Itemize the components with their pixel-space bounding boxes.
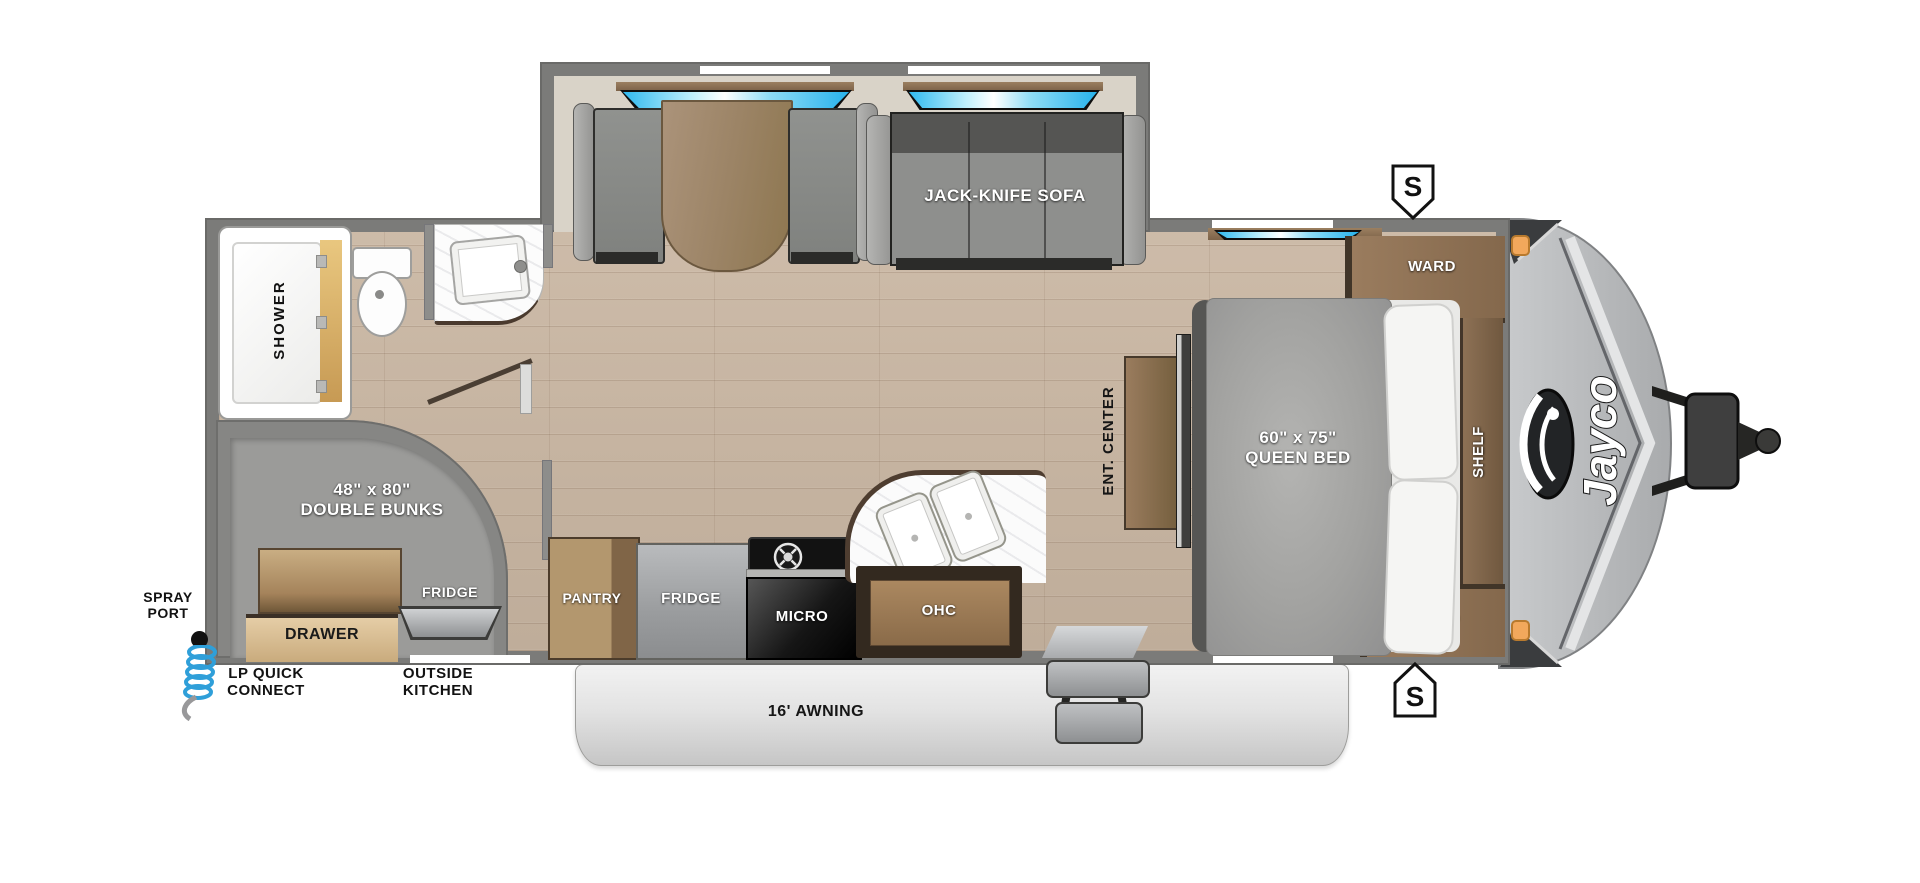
shelf-label: SHELF bbox=[1470, 372, 1490, 532]
hinge-icon bbox=[316, 380, 327, 393]
outside-fridge-door bbox=[398, 606, 502, 640]
entry-door bbox=[1042, 626, 1148, 658]
bath-wall bbox=[543, 224, 553, 268]
window-strip bbox=[410, 655, 530, 663]
overhead-cabinet-label: OHC bbox=[870, 602, 1008, 619]
dinette-bench-left bbox=[593, 108, 665, 264]
refrigerator-label: FRIDGE bbox=[636, 590, 746, 607]
badge-s-top: S bbox=[1390, 163, 1436, 221]
microwave-label: MICRO bbox=[746, 608, 858, 625]
spray-port-label: SPRAY PORT bbox=[126, 590, 210, 621]
window-strip bbox=[908, 66, 1100, 74]
pantry-label: PANTRY bbox=[548, 590, 636, 606]
window-valance bbox=[903, 82, 1103, 91]
dinette-table bbox=[661, 100, 793, 272]
shower-label: SHOWER bbox=[271, 240, 291, 400]
svg-text:S: S bbox=[1404, 171, 1423, 202]
entertainment-center bbox=[1124, 356, 1178, 530]
awning: 16' AWNING bbox=[575, 664, 1349, 766]
entry-step bbox=[1046, 660, 1150, 698]
floorplan: 16' AWNING Jayco bbox=[0, 0, 1920, 883]
front-cap: Jayco bbox=[1498, 218, 1672, 669]
toilet-flush-icon bbox=[375, 290, 384, 299]
bath-door-jamb bbox=[520, 364, 532, 414]
svg-text:S: S bbox=[1406, 681, 1425, 712]
hinge-icon bbox=[316, 255, 327, 268]
badge-s-bottom: S bbox=[1392, 661, 1438, 719]
window-strip bbox=[700, 66, 830, 74]
hinge-icon bbox=[316, 316, 327, 329]
window-strip bbox=[1212, 220, 1333, 228]
sofa-window bbox=[906, 90, 1100, 110]
window-strip bbox=[1213, 655, 1333, 663]
bench-base bbox=[791, 252, 853, 264]
awning-label: 16' AWNING bbox=[696, 703, 936, 721]
bath-wall bbox=[424, 224, 434, 320]
jayco-bird-icon bbox=[1523, 390, 1573, 498]
outside-kitchen-label: OUTSIDE KITCHEN bbox=[380, 666, 496, 700]
clearance-light-top bbox=[1511, 235, 1530, 256]
toilet-bowl bbox=[357, 271, 407, 337]
bunks-label: 48" x 80" DOUBLE BUNKS bbox=[252, 480, 492, 519]
queen-bed bbox=[1206, 298, 1392, 656]
sofa-base bbox=[896, 258, 1112, 270]
bunk-wood-panel bbox=[258, 548, 402, 614]
entry-step bbox=[1055, 702, 1143, 744]
drawer-label: DRAWER bbox=[246, 626, 398, 644]
clearance-light-bottom bbox=[1511, 620, 1530, 641]
entertainment-center-label: ENT. CENTER bbox=[1100, 346, 1120, 536]
bench-base bbox=[596, 252, 658, 264]
dinette-bench-right bbox=[788, 108, 860, 264]
window-valance bbox=[616, 82, 854, 91]
wardrobe-top-label: WARD bbox=[1366, 258, 1498, 275]
faucet-icon bbox=[514, 260, 527, 273]
dinette-armrest bbox=[573, 103, 595, 261]
lp-quick-connect-label: LP QUICK CONNECT bbox=[202, 666, 330, 700]
pillow bbox=[1383, 479, 1459, 655]
tv-icon bbox=[1176, 334, 1191, 548]
queen-bed-label: 60" x 75" QUEEN BED bbox=[1206, 428, 1390, 467]
front-cap-graphics: Jayco bbox=[1500, 220, 1670, 667]
bedroom-upper-window bbox=[1214, 230, 1362, 240]
outside-fridge-label: FRIDGE bbox=[400, 584, 500, 600]
jayco-logo-text: Jayco bbox=[1574, 376, 1626, 506]
sofa-label: JACK-KNIFE SOFA bbox=[890, 186, 1120, 206]
pillow bbox=[1383, 303, 1459, 481]
hitch-icon bbox=[1650, 380, 1790, 502]
